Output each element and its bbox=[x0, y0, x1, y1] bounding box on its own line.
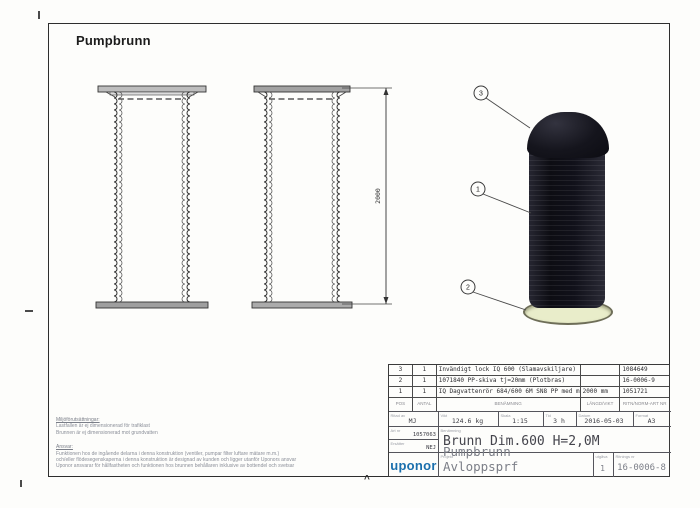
corrugation-right-inner bbox=[332, 92, 335, 302]
balloon-3-number: 3 bbox=[479, 91, 483, 98]
balloon-callouts: 3 1 2 bbox=[455, 80, 635, 330]
vikt-cell: Vikt 124.6 kg bbox=[438, 411, 498, 426]
benamning-cell: IQ Dagvattenrör 684/600 6M SN8 PP med mu… bbox=[437, 387, 581, 397]
format-value: A3 bbox=[634, 417, 669, 425]
table-row: 2 1 1071840 PP-skiva tj=20mm (Plotbras) … bbox=[389, 376, 669, 387]
artnr-header: RITN/NORM-ART NR bbox=[620, 398, 669, 411]
leader-line-2 bbox=[473, 292, 526, 310]
vikt-value: 124.6 kg bbox=[439, 417, 496, 425]
well-section-view-1 bbox=[96, 80, 208, 314]
balloon-2-number: 2 bbox=[466, 285, 470, 292]
benamning-label: Benämning bbox=[441, 428, 461, 433]
datum-value: 2016-05-03 bbox=[577, 417, 631, 425]
dimension-value: 2000 bbox=[374, 188, 382, 204]
page-title: Pumpbrunn bbox=[76, 33, 151, 48]
logo-cell: uponor bbox=[389, 452, 438, 477]
drawing-notes: Miljöförutsättningar: Lastfallen är ej d… bbox=[56, 417, 356, 470]
table-row: 1 1 IQ Dagvattenrör 684/600 6M SN8 PP me… bbox=[389, 387, 669, 398]
artnr-cell: 1051721 bbox=[620, 387, 669, 397]
pos-header: POS bbox=[389, 398, 413, 411]
uponor-logo: uponor bbox=[389, 453, 438, 477]
env-note-line: Brunnen är ej dimensionerad mot grundvat… bbox=[56, 430, 356, 436]
corrugation-left-outer bbox=[264, 92, 267, 302]
projekt-cell: Projekt Pumpbrunn Avloppsprf bbox=[438, 452, 593, 477]
antal-cell: 1 bbox=[413, 387, 437, 397]
antal-cell: 1 bbox=[413, 376, 437, 386]
antal-header: ANTAL bbox=[413, 398, 437, 411]
corrugation-left-outer bbox=[114, 92, 117, 302]
skala-cell: Skala 1:15 bbox=[498, 411, 543, 426]
utgava-value: 1 bbox=[594, 464, 611, 473]
antal-cell: 1 bbox=[413, 365, 437, 375]
corrugation-left-inner bbox=[119, 92, 122, 302]
leader-line-3 bbox=[486, 98, 530, 128]
langd-header: LÄNGD/VIKT bbox=[581, 398, 621, 411]
trim-mark-bottom-left bbox=[20, 480, 22, 487]
trim-mark-left-center bbox=[25, 310, 33, 312]
benamning-cell: 1071840 PP-skiva tj=20mm (Plotbras) bbox=[437, 376, 581, 386]
langd-cell: 2000 mm bbox=[581, 387, 621, 397]
title-block: Ritad av MJ Vikt 124.6 kg Skala 1:15 Tid… bbox=[388, 411, 670, 477]
corrugation-left-inner bbox=[269, 92, 272, 302]
lid-plate bbox=[254, 86, 350, 92]
utgava-cell: utgåva 1 bbox=[593, 452, 613, 477]
trim-mark-top-left bbox=[38, 11, 40, 19]
lid-lip bbox=[110, 92, 194, 95]
utgava-label: utgåva bbox=[596, 454, 608, 459]
lid-plate bbox=[98, 86, 206, 92]
artnr-cell: 16-0006-9 bbox=[620, 376, 669, 386]
artnr-cell: 1084649 bbox=[620, 365, 669, 375]
format-cell: Format A3 bbox=[633, 411, 671, 426]
drawing-sheet: ^ Pumpbrunn 2000 bbox=[0, 0, 700, 508]
height-dimension: 2000 bbox=[338, 82, 400, 310]
pos-cell: 3 bbox=[389, 365, 413, 375]
corrugation-right-inner bbox=[182, 92, 185, 302]
tid-cell: Tid 3 h bbox=[543, 411, 576, 426]
langd-cell bbox=[581, 376, 621, 386]
table-row: 3 1 Invändigt lock IQ 600 (Slamavskiljar… bbox=[389, 365, 669, 376]
leader-line-1 bbox=[483, 194, 531, 213]
artnr-ref-value: 1057063 bbox=[389, 432, 436, 438]
tid-value: 3 h bbox=[544, 417, 574, 425]
balloon-1-number: 1 bbox=[476, 187, 480, 194]
corrugation-right-outer bbox=[187, 92, 190, 302]
skala-value: 1:15 bbox=[499, 417, 541, 425]
datum-cell: Datum 2016-05-03 bbox=[576, 411, 633, 426]
pos-cell: 2 bbox=[389, 376, 413, 386]
well-section-view-2 bbox=[252, 80, 352, 314]
table-header-row: POS ANTAL BENÄMNING LÄNGD/VIKT RITN/NORM… bbox=[389, 398, 669, 411]
bottom-plate bbox=[96, 302, 208, 308]
ersatter-cell: Ersätter NEJ bbox=[389, 439, 438, 452]
parts-list-table: 3 1 Invändigt lock IQ 600 (Slamavskiljar… bbox=[388, 364, 670, 412]
benamning-cell: Invändigt lock IQ 600 (Slamavskiljare) bbox=[437, 365, 581, 375]
pos-cell: 1 bbox=[389, 387, 413, 397]
ritningsnr-value: 16-0006-8 bbox=[614, 463, 669, 473]
ersatter-value: NEJ bbox=[389, 445, 436, 451]
arrowhead-top bbox=[384, 88, 389, 95]
bottom-plate bbox=[252, 302, 352, 308]
ritad-av-value: MJ bbox=[389, 417, 436, 425]
ritningsnr-cell: Ritnings nr 16-0006-8 bbox=[613, 452, 671, 477]
projekt-value: Pumpbrunn Avloppsprf bbox=[443, 444, 591, 474]
arrowhead-bottom bbox=[384, 297, 389, 304]
artnr-ref-cell: Art nr 1057063 bbox=[389, 426, 438, 439]
langd-cell bbox=[581, 365, 621, 375]
resp-note-line: Uponor ansvarar för hållfastheten och fu… bbox=[56, 463, 356, 469]
ritningsnr-label: Ritnings nr bbox=[616, 454, 635, 459]
ritad-av-cell: Ritad av MJ bbox=[389, 411, 438, 426]
benamning-header: BENÄMNING bbox=[437, 398, 581, 411]
